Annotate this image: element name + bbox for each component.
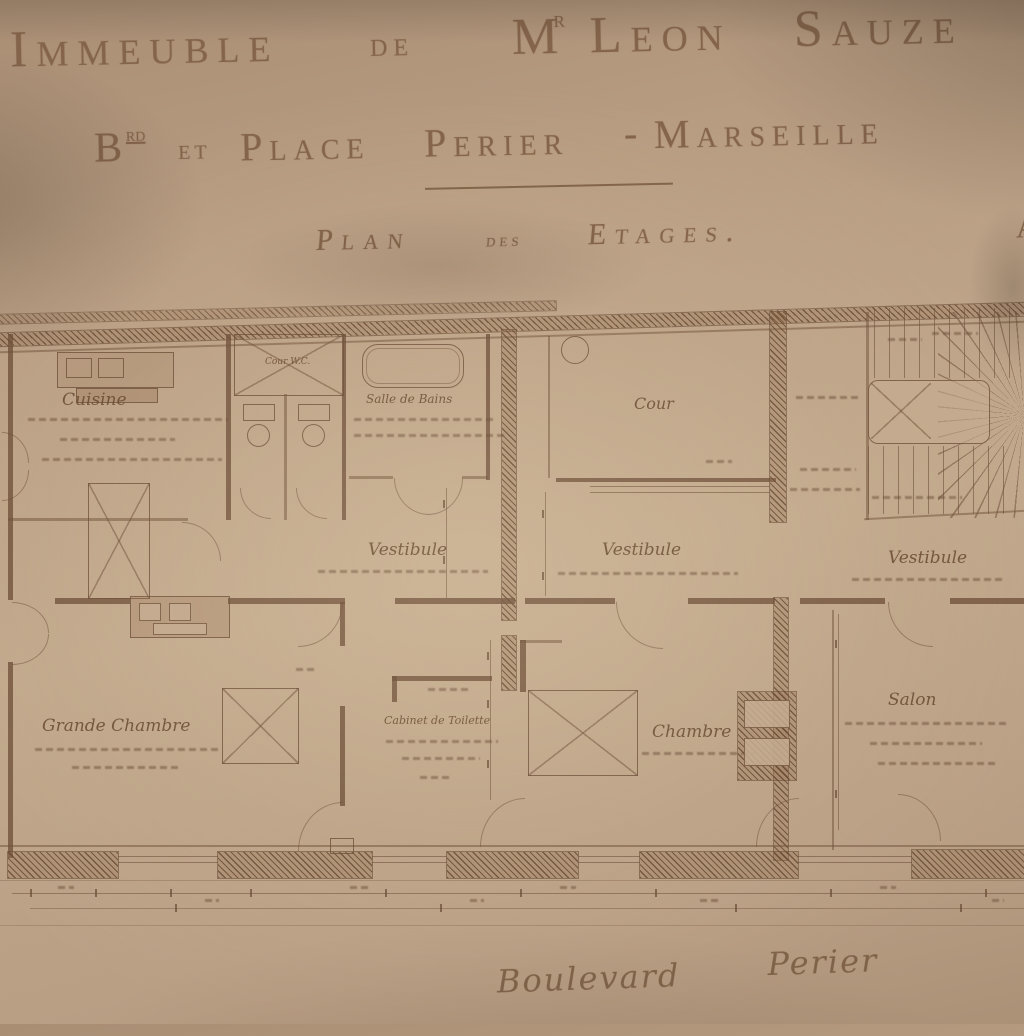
window-band [798,856,912,863]
room-label-cabinet-de-toilette: Cabinet de Toilette [384,714,490,727]
wall [520,640,562,643]
room-label-cour: Cour [634,394,674,413]
facade-wall-line [0,880,1024,881]
dimension-tick [835,640,837,648]
annotation-scribble [878,762,998,765]
dimension-scribble [350,886,368,889]
dimension-tick [542,510,544,518]
door-arc [12,602,49,633]
wc-bowl [302,424,325,447]
wall [395,598,515,604]
stair-lower-flight [868,446,1018,514]
dimension-tick [542,572,544,580]
annotation-scribble [790,488,860,491]
left-wall [8,662,13,858]
balcony-hatched [447,852,578,878]
dimension-scribble [992,899,1004,902]
dimension-tick [250,889,252,897]
room-label-cour-wc: Cour W.C. [265,357,310,367]
street-word: Perier [767,941,879,983]
door-arc [298,602,343,647]
door-arc [394,478,429,515]
wall [349,476,393,479]
dimension-tick [385,889,387,897]
dimension-scribble [420,776,450,779]
street-word: Boulevard [496,956,681,1000]
dimension-tick [655,889,657,897]
annotation-scribble [354,418,494,421]
annotation-scribble [796,396,858,399]
room-label-vestibule: Vestibule [602,540,681,560]
annotation-scribble [402,757,480,760]
wall [392,676,397,702]
stove-burner [66,358,92,378]
dimension-scribble [58,886,74,889]
wall [486,334,490,480]
wall [392,676,492,681]
dimension-tick [835,790,837,798]
room-label-cuisine: Cuisine [62,390,127,410]
dimension-tick [170,889,172,897]
stove-burner [98,358,124,378]
dimension-tick [175,904,177,912]
window-band [372,856,447,863]
door-arc [480,798,525,847]
annotation-scribble [800,468,856,471]
annotation-scribble [28,418,228,421]
annotation-scribble [845,722,1007,725]
wall [55,598,130,604]
dimension-chain [545,492,546,596]
wall [832,610,834,850]
party-wall-hatched [502,330,516,620]
room-label-salle-de-bains: Salle de Bains [366,392,452,406]
room-label-vestibule: Vestibule [888,548,967,568]
wall [340,602,345,646]
flue-block-hatched [738,692,796,780]
dimension-tick [487,652,489,660]
door-arc [898,794,941,841]
wc-cistern [298,404,330,421]
door-arc [756,798,799,847]
dimension-chain [838,614,839,830]
annotation-scribble [852,578,1002,581]
annotation-scribble [60,438,175,441]
balcony-hatched [8,852,118,878]
dimension-chain [490,640,491,800]
wall [525,598,615,604]
room-label-salon: Salon [888,690,936,710]
dimension-tick [985,889,987,897]
left-wall [8,334,13,600]
photographed-floor-plan: { "header": { "title": { "w1": "Immeuble… [0,0,1024,1024]
light-well-cour-wc: Cour W.C. [234,334,344,396]
dimension-scribble [700,899,718,902]
party-wall-hatched [502,636,516,690]
wall [342,334,346,520]
wall [340,706,345,806]
chimney-flue [561,336,589,364]
wc-cistern [243,404,275,421]
facade-pier [330,838,354,854]
wall [520,640,526,692]
annotation-scribble [42,458,222,461]
wall [950,598,1024,604]
annotation-scribble [386,740,498,743]
door-arc [296,488,327,519]
dimension-scribble [880,886,896,889]
annotation-scribble [558,572,738,575]
door-arc [2,470,29,501]
elevator-shaft [871,383,931,439]
balcony-hatched [218,852,372,878]
balcony-hatched [912,850,1024,878]
dimension-tick [830,889,832,897]
dimension-tick [440,904,442,912]
window-band [590,486,770,493]
crossed-box-wardrobe [222,688,299,764]
wall [548,336,550,478]
bathtub [362,344,464,388]
dimension-line [30,908,1024,909]
dimension-tick [443,500,445,508]
facade-wall-line [0,845,1024,847]
dimension-scribble [470,899,484,902]
room-label-grande-chambre: Grande Chambre [42,716,190,736]
annotation-scribble [72,766,180,769]
room-label-vestibule: Vestibule [368,540,447,560]
annotation-scribble [354,434,504,437]
crossed-box-flue [88,483,150,599]
wall [556,478,776,482]
dimension-tick [960,904,962,912]
door-arc [2,432,29,463]
dimension-tick [487,760,489,768]
dimension-scribble [706,460,732,463]
wall [462,476,488,479]
party-wall-hatched [770,312,786,522]
annotation-scribble [872,496,962,499]
dimension-scribble [560,886,576,889]
dimension-line [0,925,1024,926]
dimension-scribble [205,899,219,902]
crossed-box-wardrobe [528,690,638,776]
wall [226,334,231,520]
window-band [578,856,640,863]
dimension-line [12,893,1024,894]
door-arc [616,602,663,649]
floor-plan: Cuisine Cour W.C. Salle de Bains Cour [0,0,1024,1024]
door-arc [182,522,221,561]
annotation-scribble [35,748,220,751]
room-label-chambre: Chambre [652,722,731,742]
dimension-tick [735,904,737,912]
window-band [118,856,218,863]
dimension-scribble [296,668,318,671]
door-arc [240,488,271,519]
balcony-hatched [640,852,798,878]
wc-bowl [247,424,270,447]
dimension-tick [520,889,522,897]
fireplace [130,596,230,638]
door-arc [888,602,933,647]
wall [800,598,885,604]
dimension-tick [487,700,489,708]
dimension-tick [30,889,32,897]
annotation-scribble [318,570,488,573]
annotation-scribble [870,742,982,745]
wall [688,598,775,604]
dimension-tick [95,889,97,897]
wall [284,394,287,520]
door-arc [12,634,49,665]
annotation-scribble [428,688,472,691]
